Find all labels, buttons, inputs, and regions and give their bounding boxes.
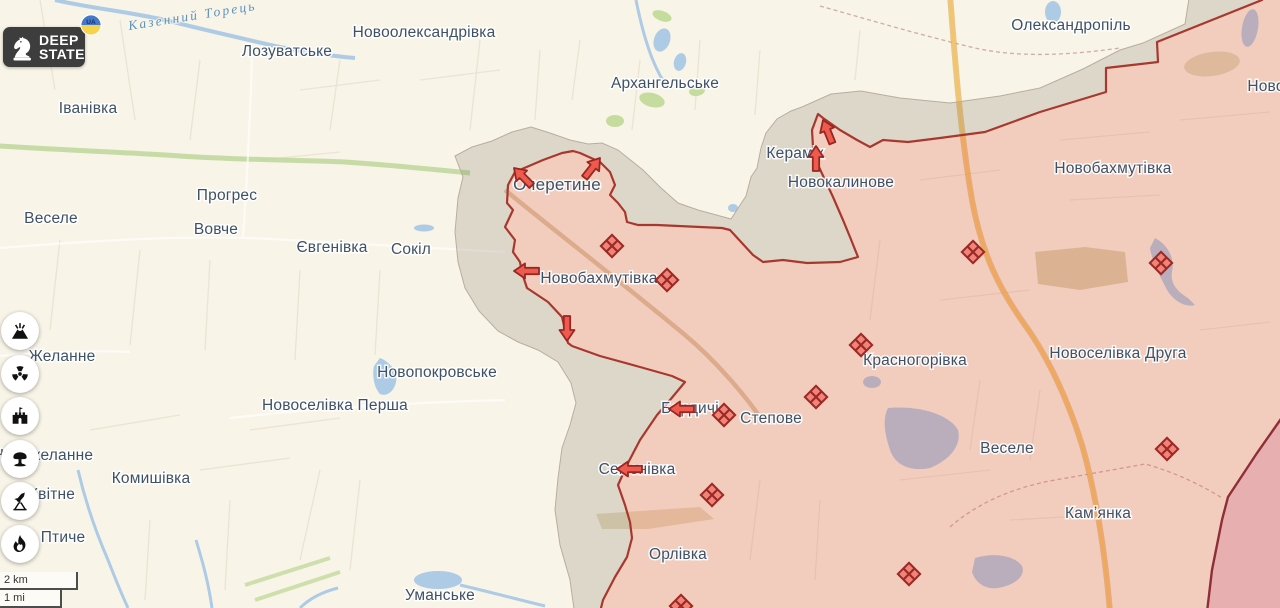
settlement-label: Красногорівка xyxy=(863,352,967,369)
logo-text-line2: STATE xyxy=(39,47,85,61)
deepstate-map-app: НовоолександрівкаЛозуватськеАрхангельськ… xyxy=(0,0,1280,608)
logo-text-line1: DEEP xyxy=(39,33,85,47)
settlement-label: Новобахмутівка xyxy=(540,270,657,287)
scale-control: 2 km 1 mi xyxy=(0,572,78,608)
settlement-label: Степове xyxy=(740,410,802,427)
settlement-label: Іванівка xyxy=(59,100,118,117)
chess-knight-icon xyxy=(9,31,35,63)
settlement-label: Орлівка xyxy=(649,546,707,563)
settlement-label: Прогрес xyxy=(197,187,257,204)
settlement-label: Сокіл xyxy=(391,241,431,258)
map-canvas[interactable]: НовоолександрівкаЛозуватськеАрхангельськ… xyxy=(0,0,1280,608)
rocket-icon xyxy=(9,490,31,512)
layer-button-fire[interactable] xyxy=(1,525,39,563)
layer-button-fort[interactable] xyxy=(1,397,39,435)
settlement-label: Камʼянка xyxy=(1065,505,1131,522)
mushroom-cloud-icon xyxy=(9,448,31,470)
settlement-label: Уманське xyxy=(405,587,475,604)
fort-icon xyxy=(9,405,31,427)
ua-badge-text: UA xyxy=(86,19,96,26)
scale-mi: 1 mi xyxy=(0,590,62,608)
deepstate-logo[interactable]: DEEP STATE xyxy=(3,27,85,67)
scale-km: 2 km xyxy=(0,572,78,590)
settlement-label: Олександропіль xyxy=(1011,17,1130,34)
settlement-label: Новоселівка Перша xyxy=(262,397,408,414)
settlement-label: Новобахмутівка xyxy=(1054,160,1171,177)
settlement-label: Веселе xyxy=(24,210,78,227)
settlement-label: Лозуватське xyxy=(242,43,332,60)
settlement-label: Новокалинове xyxy=(788,174,894,191)
settlement-label: Комишівка xyxy=(112,470,191,487)
layer-button-volcano[interactable] xyxy=(1,312,39,350)
flame-icon xyxy=(9,533,31,555)
settlement-label: Новоолександрівка xyxy=(353,24,496,41)
settlement-label: Птиче xyxy=(41,529,86,546)
settlement-label: Желанне xyxy=(28,348,95,365)
layer-button-nuke[interactable] xyxy=(1,440,39,478)
settlement-label: Новоселівка Друга xyxy=(1049,345,1186,362)
settlement-label: Новопокровське xyxy=(377,364,497,381)
ua-badge: UA xyxy=(80,14,102,36)
settlement-label: Євгенівка xyxy=(296,239,367,256)
volcano-icon xyxy=(9,320,31,342)
settlement-label: Ново xyxy=(1247,78,1280,95)
settlement-label: Вовче xyxy=(194,221,238,238)
settlement-label: Архангельське xyxy=(611,75,719,92)
layer-button-radiation[interactable] xyxy=(1,355,39,393)
radiation-icon xyxy=(9,363,31,385)
settlement-label: Веселе xyxy=(980,440,1034,457)
